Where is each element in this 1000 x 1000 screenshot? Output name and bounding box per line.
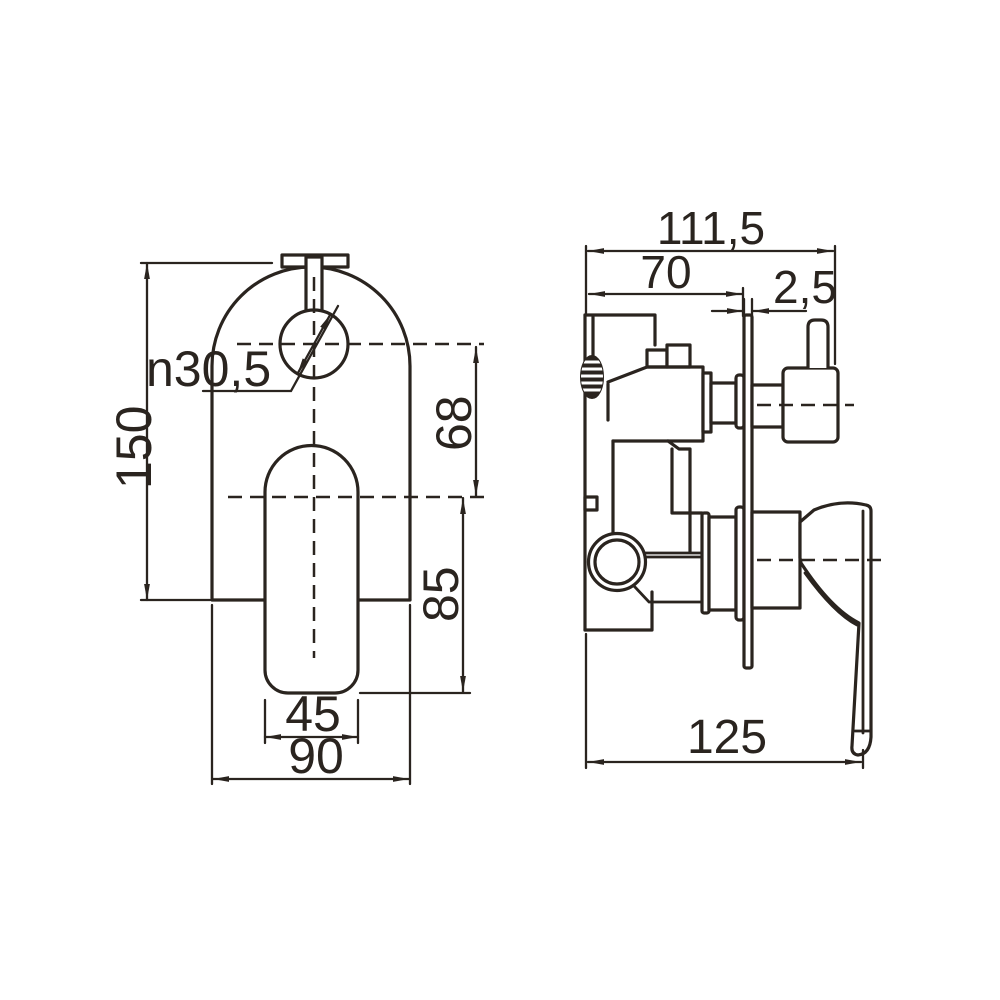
dim-center-to-handle-end-label: 85: [413, 566, 469, 622]
lever-handle-side: [800, 503, 871, 755]
drawing-canvas: n30,5 150 68 85 45 90: [0, 0, 1000, 1000]
diverter-knob-stem: [808, 320, 828, 368]
dim-height-label: 150: [106, 406, 162, 489]
hatched-inlet: [578, 356, 606, 398]
dim-hole-diameter-label: n30,5: [146, 341, 271, 397]
dim-hole-spacing-label: 68: [426, 395, 482, 451]
technical-drawing-page: n30,5 150 68 85 45 90: [0, 0, 1000, 1000]
inlet-port-outer-circle: [589, 534, 646, 591]
front-view: n30,5 150 68 85 45 90: [106, 255, 484, 784]
body-top-port: [585, 315, 655, 355]
dim-body-depth-label: 70: [640, 246, 691, 298]
side-view: 111,5 70 2,5 125: [578, 202, 888, 768]
wall-plate-side: [744, 315, 752, 668]
body-bottom-edge: [585, 592, 652, 630]
lower-cartridge-block: [709, 517, 736, 610]
diverter-block-right: [667, 345, 690, 367]
upper-cylinder: [711, 383, 736, 423]
dim-width-label: 90: [288, 728, 344, 784]
dim-plate-thickness-label: 2,5: [773, 261, 837, 313]
back-mount-step: [585, 497, 597, 510]
dim-depth-with-handle-label: 125: [687, 711, 767, 764]
diverter-block-left: [647, 350, 667, 367]
upper-block: [608, 367, 703, 441]
handle-cutout: [265, 446, 358, 693]
